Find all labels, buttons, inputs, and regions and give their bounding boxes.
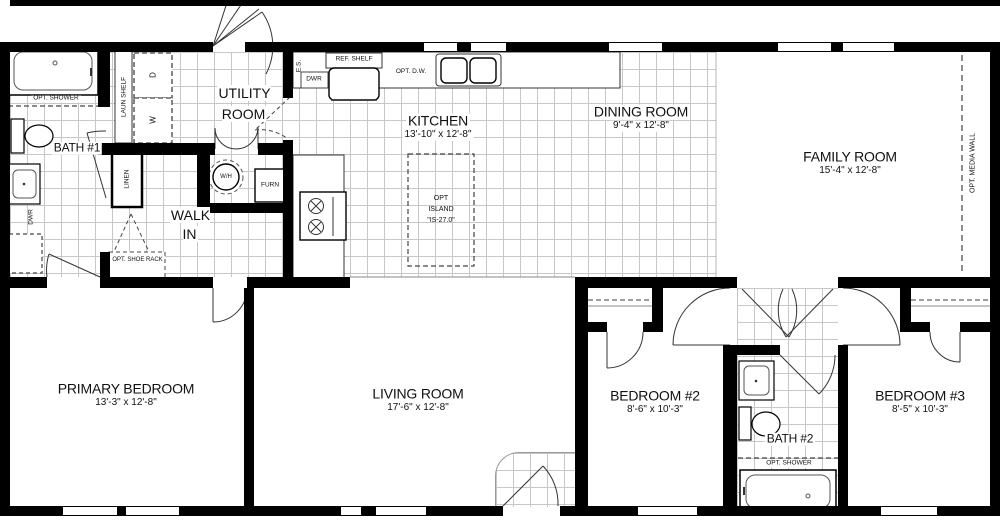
room-dims-bedroom3: 8'-5" x 10'-3" [892, 405, 948, 416]
wall [663, 42, 777, 52]
refrigerator [329, 68, 379, 100]
shoe-rack-label: OPT. SHOE RACK [111, 256, 164, 264]
wall [838, 345, 848, 516]
wall [832, 42, 842, 52]
window [608, 42, 663, 52]
stove [300, 192, 346, 240]
wall [838, 277, 1000, 288]
room-dims-dining: 9'-4" x 12'-8" [611, 121, 671, 132]
bedroom2-closet-door [607, 332, 643, 368]
window [423, 42, 458, 52]
wall [244, 288, 254, 516]
wall [643, 322, 663, 332]
wall [100, 252, 110, 278]
room-label-kitchen: KITCHEN [406, 114, 470, 129]
window [880, 506, 938, 516]
wall [427, 506, 503, 516]
bathtub-bath1 [8, 47, 98, 95]
walkin-bifold-door [112, 214, 151, 256]
wall [560, 506, 637, 516]
room-label-bath1: BATH #1 [52, 142, 102, 155]
wall [118, 506, 125, 516]
room-dims-bedroom2: 8'-6" x 10'-3" [627, 405, 683, 416]
opt-cabinet-bath1 [9, 234, 42, 273]
ref-shelf-label: REF. SHELF [336, 57, 373, 64]
rear-entry-door-swing [213, 0, 273, 74]
sink-vanity-bath2 [739, 361, 774, 400]
window [470, 42, 507, 52]
window [62, 506, 118, 516]
wall [98, 42, 110, 107]
wall [0, 277, 47, 288]
wall [900, 288, 911, 332]
wall [247, 277, 350, 288]
dwr-label-bath1: DWR [28, 209, 35, 225]
water-heater-label: W/H [220, 174, 232, 180]
laun-shelf-label: LAUN SHELF [121, 77, 128, 117]
window [340, 506, 362, 516]
wall [362, 506, 375, 516]
room-dims-family: 15'-4" x 12'-8" [819, 166, 881, 177]
dryer-label: D [149, 72, 158, 78]
room-label-utility: UTILITY ROOM [196, 83, 292, 125]
wall [98, 143, 215, 155]
room-dims-primary: 13'-3" x 12'-8" [95, 398, 157, 409]
floor-plan: BATH #1 UTILITY ROOM KITCHEN 13'-10" x 1… [0, 0, 1000, 522]
wall [895, 42, 1000, 52]
wall [725, 345, 780, 355]
room-label-bedroom2: BEDROOM #2 [610, 389, 700, 404]
dwr-label-kitchen: DWR [306, 77, 322, 84]
wall [588, 322, 607, 332]
primary-door-hall [47, 254, 100, 277]
island-label: OPT ISLAND "IS-27.0" [408, 193, 474, 226]
window [777, 42, 832, 52]
hallway-doors [742, 289, 833, 337]
window [375, 506, 427, 516]
wall [180, 506, 340, 516]
washer-label: W [149, 116, 158, 124]
top-border-rule [10, 0, 1000, 6]
bath2-door [780, 355, 835, 394]
room-label-living: LIVING ROOM [372, 387, 463, 402]
wall [723, 345, 737, 516]
wall [575, 277, 737, 288]
room-label-dining: DINING ROOM [592, 105, 690, 120]
room-label-family: FAMILY ROOM [803, 150, 897, 165]
toilet-bath1 [11, 119, 53, 153]
wall [100, 277, 213, 288]
window [842, 42, 895, 52]
kitchen-sink [436, 54, 501, 86]
bedroom3-closet-door [930, 332, 960, 362]
wall [283, 140, 293, 288]
wall [0, 506, 62, 516]
wall [575, 288, 588, 516]
primary-door [213, 288, 247, 322]
wall [458, 42, 470, 52]
es-label: E.S. [296, 60, 303, 72]
linen-label: LINEN [124, 169, 131, 188]
room-label-walkin: WALK IN [162, 206, 218, 244]
window [637, 506, 698, 516]
opt-media-wall-label: OPT. MEDIA WALL [970, 133, 977, 193]
room-label-bedroom3: BEDROOM #3 [875, 389, 965, 404]
bedroom3-door [843, 288, 900, 345]
wall [245, 42, 423, 52]
wall [960, 322, 990, 332]
wall [938, 506, 1000, 516]
window [125, 506, 180, 516]
opt-shower-label-bath1: OPT. SHOWER [31, 96, 81, 103]
opt-shower-label-bath2: OPT. SHOWER [764, 461, 814, 468]
wall [911, 322, 930, 332]
furnace-label: FURN [261, 183, 279, 190]
sink-vanity-bath1 [9, 164, 40, 204]
bedroom2-door [673, 288, 730, 345]
front-entry-door [503, 466, 558, 506]
room-dims-living: 17'-6" x 12'-8" [387, 403, 449, 414]
room-label-bath2: BATH #2 [765, 433, 815, 446]
room-label-primary: PRIMARY BEDROOM [58, 382, 195, 397]
opt-dw-label: OPT. D.W. [394, 67, 428, 76]
utility-double-door [215, 127, 258, 149]
wall [507, 42, 608, 52]
room-dims-kitchen: 13'-10" x 12'-8" [402, 130, 473, 141]
